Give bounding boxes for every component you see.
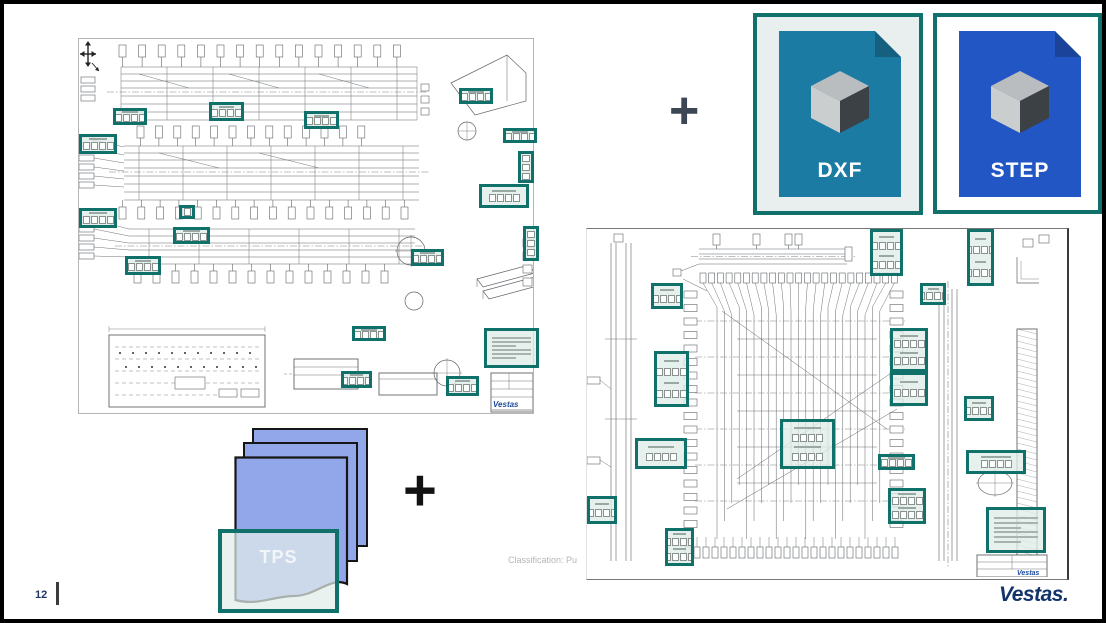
callout-highlight-box bbox=[113, 108, 147, 125]
callout-highlight-box bbox=[966, 450, 1026, 474]
callout-highlight-box bbox=[635, 438, 687, 469]
tps-highlight-box: TPS bbox=[218, 529, 339, 613]
footer-divider-bar bbox=[56, 582, 59, 605]
folded-corner-icon bbox=[875, 31, 901, 57]
callout-highlight-box bbox=[523, 226, 539, 261]
step-file-card: STEP bbox=[933, 13, 1102, 214]
tps-file-card: TPS bbox=[218, 423, 383, 619]
tps-label: TPS bbox=[222, 547, 335, 568]
callout-highlight-box bbox=[479, 184, 529, 208]
callout-highlight-box bbox=[179, 205, 195, 219]
plus-sign: + bbox=[403, 462, 437, 520]
page-number: 12 bbox=[35, 589, 47, 601]
callout-highlight-box bbox=[654, 351, 689, 407]
callout-highlight-box bbox=[967, 229, 994, 286]
callout-highlight-box bbox=[173, 227, 210, 244]
plus-sign: + bbox=[669, 85, 699, 137]
folded-corner-icon bbox=[1055, 31, 1081, 57]
notes-highlight-box bbox=[986, 507, 1046, 553]
callout-highlight-box bbox=[125, 256, 161, 275]
classification-text: Classification: Pu bbox=[508, 555, 577, 565]
vestas-logo: Vestas. bbox=[999, 583, 1068, 607]
callout-highlight-box bbox=[79, 134, 117, 154]
callout-highlight-box bbox=[888, 488, 926, 524]
callout-highlight-box bbox=[890, 328, 928, 372]
callout-highlight-box bbox=[341, 371, 372, 388]
callout-highlight-box bbox=[780, 419, 835, 469]
left-engineering-drawing: Vestas bbox=[78, 38, 534, 414]
notes-highlight-box bbox=[484, 328, 539, 368]
cube-3d-icon bbox=[991, 71, 1049, 133]
callout-highlight-box bbox=[352, 326, 386, 341]
cube-3d-icon bbox=[811, 71, 869, 133]
callout-highlight-box bbox=[79, 208, 117, 228]
callout-highlight-box bbox=[870, 229, 903, 276]
dxf-label: DXF bbox=[779, 159, 901, 183]
right-engineering-drawing: Vestas bbox=[586, 228, 1069, 580]
svg-text:Vestas: Vestas bbox=[1017, 570, 1039, 577]
callout-highlight-box bbox=[587, 496, 617, 524]
callout-highlight-box bbox=[503, 128, 537, 143]
callout-highlight-box bbox=[665, 528, 694, 566]
callout-highlight-box bbox=[964, 396, 994, 421]
callout-highlight-box bbox=[411, 249, 444, 266]
callout-highlight-box bbox=[209, 102, 244, 121]
callout-highlight-box bbox=[446, 376, 479, 396]
callout-highlight-box bbox=[518, 151, 534, 183]
callout-highlight-box bbox=[651, 283, 683, 309]
step-label: STEP bbox=[959, 159, 1081, 183]
dxf-document-icon: DXF bbox=[779, 31, 901, 197]
callout-highlight-box bbox=[890, 372, 928, 406]
svg-text:Vestas: Vestas bbox=[493, 400, 519, 409]
callout-highlight-box bbox=[878, 454, 915, 470]
presentation-slide: Vestas Vestas DXF STEP + bbox=[0, 0, 1106, 623]
step-document-icon: STEP bbox=[959, 31, 1081, 197]
callout-highlight-box bbox=[920, 283, 946, 305]
callout-highlight-box bbox=[459, 88, 493, 104]
dxf-file-card: DXF bbox=[753, 13, 923, 215]
callout-highlight-box bbox=[304, 111, 339, 129]
